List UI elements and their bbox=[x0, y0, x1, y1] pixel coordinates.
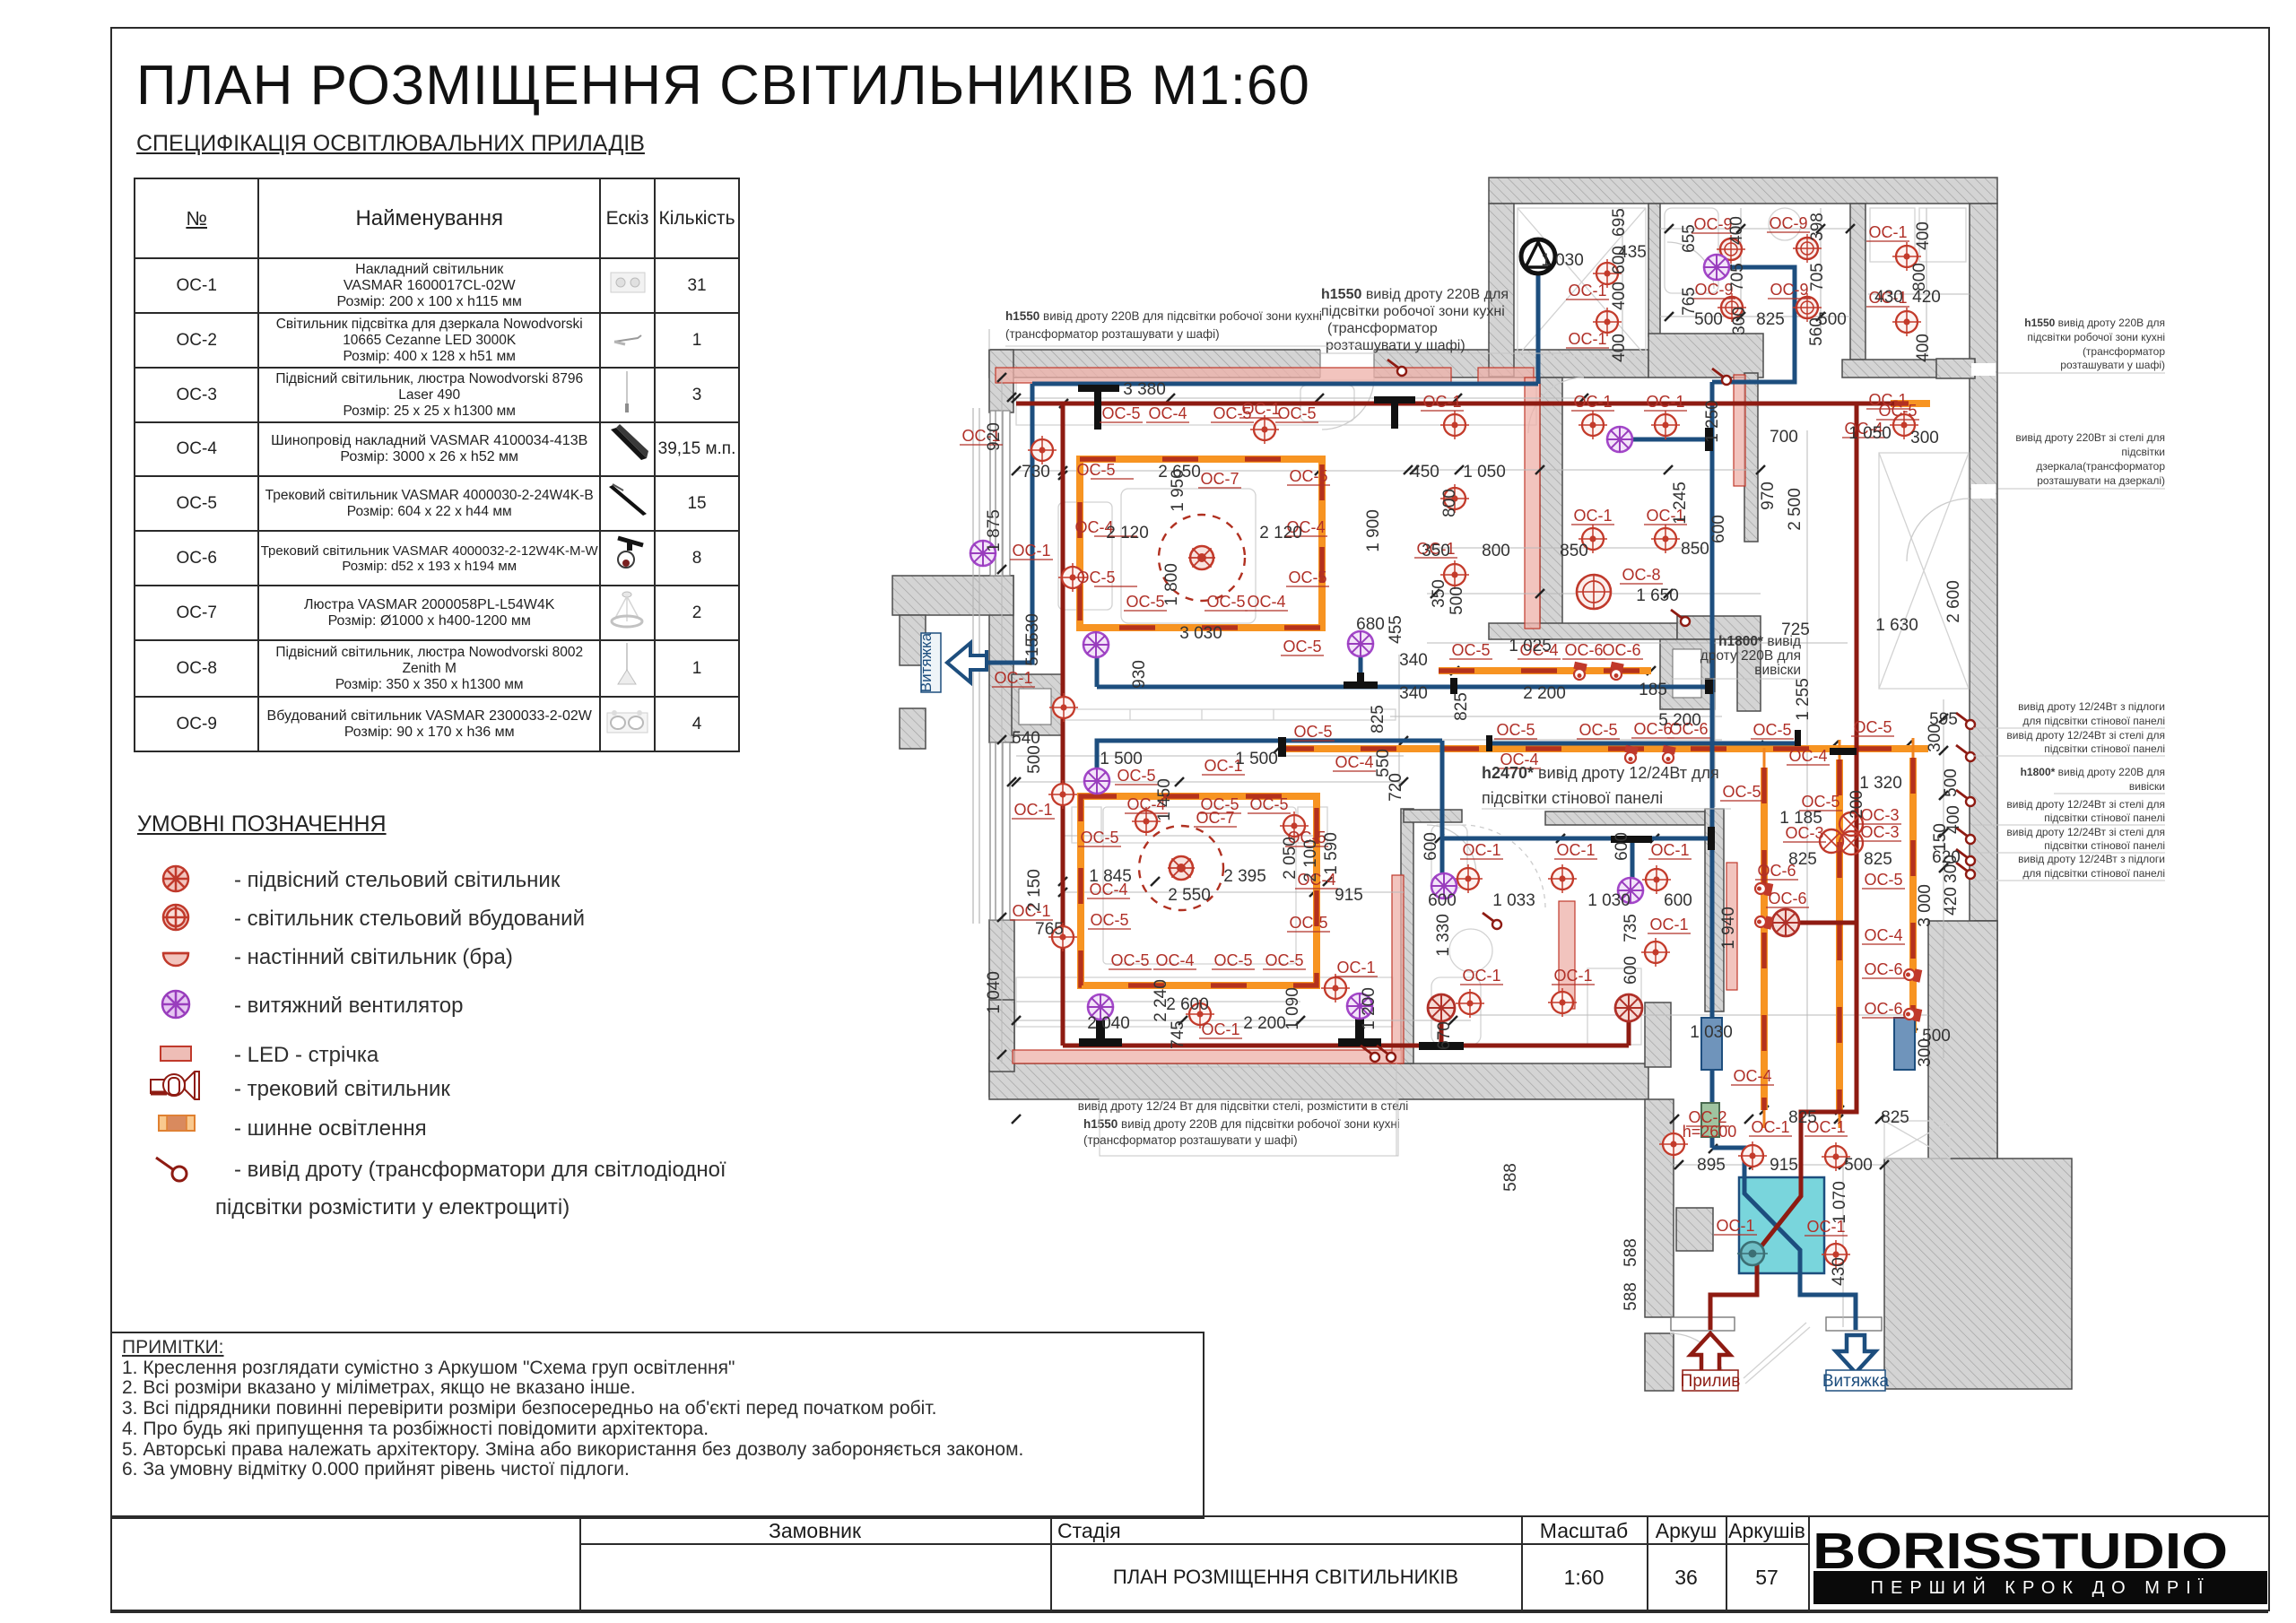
svg-text:930: 930 bbox=[1130, 660, 1149, 689]
svg-text:970: 970 bbox=[1759, 482, 1778, 510]
svg-text:ОС-4: ОС-4 bbox=[1788, 747, 1827, 765]
svg-text:920: 920 bbox=[985, 422, 1004, 451]
svg-text:2 600: 2 600 bbox=[1166, 995, 1209, 1014]
svg-text:825: 825 bbox=[1369, 705, 1387, 733]
svg-text:2 600: 2 600 bbox=[1944, 580, 1963, 623]
svg-text:ОС-1: ОС-1 bbox=[1462, 967, 1500, 985]
svg-text:1 500: 1 500 bbox=[1235, 750, 1278, 768]
svg-text:3 380: 3 380 bbox=[1123, 380, 1166, 399]
svg-text:ОС-1: ОС-1 bbox=[1573, 393, 1612, 411]
svg-text:800: 800 bbox=[1440, 489, 1459, 517]
svg-text:500: 500 bbox=[1025, 745, 1044, 774]
svg-text:підсвітки стінової панелі: підсвітки стінової панелі bbox=[2044, 811, 2165, 824]
svg-text:h1550 вивід дроту 220В для під: h1550 вивід дроту 220В для підсвітки роб… bbox=[1083, 1117, 1400, 1131]
svg-text:825: 825 bbox=[1864, 850, 1892, 869]
svg-text:3 030: 3 030 bbox=[1179, 624, 1222, 643]
svg-text:для підсвітки стінової панелі: для підсвітки стінової панелі bbox=[2022, 867, 2165, 880]
svg-text:600: 600 bbox=[1422, 832, 1440, 861]
svg-text:850: 850 bbox=[1560, 542, 1588, 560]
svg-text:ОС-7: ОС-7 bbox=[1200, 470, 1239, 488]
svg-text:1 030: 1 030 bbox=[1541, 251, 1584, 270]
svg-text:350: 350 bbox=[1422, 542, 1450, 560]
svg-text:300: 300 bbox=[1926, 724, 1944, 752]
svg-text:підсвітки стінової панелі: підсвітки стінової панелі bbox=[2044, 742, 2165, 755]
svg-text:670: 670 bbox=[1435, 1021, 1454, 1050]
svg-text:ОС-1: ОС-1 bbox=[1868, 391, 1907, 409]
svg-text:450: 450 bbox=[1411, 463, 1439, 482]
svg-text:ОС-4: ОС-4 bbox=[1247, 593, 1285, 611]
svg-text:600: 600 bbox=[1622, 956, 1640, 985]
svg-text:1 255: 1 255 bbox=[1794, 678, 1813, 721]
svg-text:695: 695 bbox=[1610, 208, 1629, 237]
svg-text:530: 530 bbox=[1023, 613, 1042, 642]
svg-text:ОС-1: ОС-1 bbox=[1716, 1217, 1754, 1235]
svg-text:ОС-1: ОС-1 bbox=[1568, 330, 1606, 348]
svg-text:1 630: 1 630 bbox=[1875, 616, 1918, 635]
svg-text:765: 765 bbox=[1035, 920, 1064, 939]
svg-text:ОС-4: ОС-4 bbox=[1148, 404, 1187, 422]
svg-text:ОС-3: ОС-3 bbox=[1860, 823, 1899, 841]
svg-text:Витяжка: Витяжка bbox=[1822, 1372, 1890, 1391]
svg-text:ОС-6: ОС-6 bbox=[1864, 960, 1902, 978]
svg-text:1 845: 1 845 bbox=[1089, 867, 1132, 886]
svg-text:825: 825 bbox=[1881, 1108, 1909, 1127]
svg-text:600: 600 bbox=[1664, 891, 1692, 910]
svg-text:ОС-5: ОС-5 bbox=[1101, 404, 1140, 422]
svg-text:ОС-6: ОС-6 bbox=[1864, 1000, 1902, 1018]
svg-text:1 590: 1 590 bbox=[1322, 832, 1341, 875]
svg-text:ОС-5: ОС-5 bbox=[1722, 783, 1761, 801]
svg-text:ОС-6: ОС-6 bbox=[1768, 890, 1806, 907]
svg-text:1 500: 1 500 bbox=[1100, 750, 1143, 768]
svg-text:825: 825 bbox=[1452, 692, 1471, 721]
svg-text:h=2600: h=2600 bbox=[1683, 1123, 1737, 1141]
svg-text:550: 550 bbox=[1374, 749, 1393, 777]
svg-text:ОС-1: ОС-1 bbox=[994, 669, 1032, 687]
svg-text:2 050: 2 050 bbox=[1281, 837, 1300, 880]
svg-text:720: 720 bbox=[1387, 773, 1405, 802]
svg-text:655: 655 bbox=[1680, 224, 1699, 253]
svg-text:1 450: 1 450 bbox=[1155, 778, 1174, 821]
svg-text:ОС-1: ОС-1 bbox=[1649, 916, 1688, 933]
svg-text:ОС-9: ОС-9 bbox=[1769, 214, 1807, 232]
svg-text:5 200: 5 200 bbox=[1658, 711, 1701, 730]
svg-text:1 250: 1 250 bbox=[1703, 400, 1722, 443]
svg-text:588: 588 bbox=[1622, 1238, 1640, 1267]
svg-text:ОС-1: ОС-1 bbox=[1462, 841, 1500, 859]
svg-text:400: 400 bbox=[1914, 334, 1933, 362]
svg-text:ОС-4: ОС-4 bbox=[1335, 753, 1373, 771]
svg-text:ОС-4: ОС-4 bbox=[1733, 1067, 1771, 1085]
svg-text:ОС-5: ОС-5 bbox=[1076, 461, 1115, 479]
svg-text:150: 150 bbox=[1931, 823, 1950, 852]
svg-text:ОС-5: ОС-5 bbox=[1451, 641, 1490, 659]
svg-text:850: 850 bbox=[1681, 540, 1709, 559]
svg-text:2 040: 2 040 bbox=[1087, 1014, 1130, 1033]
svg-text:185: 185 bbox=[1639, 681, 1667, 699]
svg-text:вивіски: вивіски bbox=[1754, 663, 1801, 678]
svg-text:ОС-5: ОС-5 bbox=[1249, 795, 1288, 813]
svg-text:ОС-4: ОС-4 bbox=[1155, 951, 1194, 969]
svg-text:ОС-5: ОС-5 bbox=[1076, 568, 1115, 586]
svg-text:розташувати у шафі): розташувати у шафі) bbox=[2060, 359, 2165, 371]
svg-text:Витяжка: Витяжка bbox=[918, 632, 935, 692]
svg-text:вивід дроту 220Вт зі стелі для: вивід дроту 220Вт зі стелі для bbox=[2015, 431, 2165, 444]
svg-text:для підсвітки стінової панелі: для підсвітки стінової панелі bbox=[2022, 715, 2165, 727]
svg-text:вивід дроту 12/24Вт з підлоги: вивід дроту 12/24Вт з підлоги bbox=[2018, 700, 2165, 713]
svg-text:825: 825 bbox=[1756, 310, 1785, 329]
svg-text:600: 600 bbox=[1610, 246, 1629, 274]
svg-text:2 150: 2 150 bbox=[1025, 869, 1044, 912]
svg-text:ОС-5: ОС-5 bbox=[1283, 638, 1321, 655]
svg-text:вивід дроту 12/24Вт зі стелі д: вивід дроту 12/24Вт зі стелі для bbox=[2006, 826, 2165, 838]
svg-text:300: 300 bbox=[1916, 1038, 1935, 1067]
svg-text:735: 735 bbox=[1622, 914, 1640, 942]
svg-text:2 240: 2 240 bbox=[1152, 979, 1170, 1022]
svg-text:1 185: 1 185 bbox=[1779, 809, 1822, 828]
svg-text:h1550 вивід дроту 220В для: h1550 вивід дроту 220В для bbox=[2024, 317, 2165, 329]
svg-text:вивід дроту 12/24Вт зі стелі д: вивід дроту 12/24Вт зі стелі для bbox=[2006, 729, 2165, 742]
svg-text:340: 340 bbox=[1399, 684, 1428, 703]
svg-text:ОС-9: ОС-9 bbox=[1770, 281, 1808, 299]
svg-text:400: 400 bbox=[1914, 221, 1933, 250]
svg-text:ОС-1: ОС-1 bbox=[1568, 282, 1606, 299]
svg-text:1 050: 1 050 bbox=[1463, 463, 1506, 482]
svg-text:розташувати на дзеркалі): розташувати на дзеркалі) bbox=[2037, 474, 2165, 487]
svg-text:2 120: 2 120 bbox=[1106, 524, 1149, 542]
svg-text:вивід дроту 12/24Вт зі стелі д: вивід дроту 12/24Вт зі стелі для bbox=[2006, 798, 2165, 811]
svg-text:ОС-1: ОС-1 bbox=[1553, 967, 1592, 985]
svg-text:915: 915 bbox=[1770, 1156, 1798, 1175]
svg-text:ОС-6: ОС-6 bbox=[1602, 641, 1640, 659]
svg-text:340: 340 bbox=[1399, 651, 1428, 670]
svg-text:745: 745 bbox=[1169, 1020, 1187, 1049]
svg-text:ОС-5: ОС-5 bbox=[1206, 593, 1245, 611]
svg-text:ОС-1: ОС-1 bbox=[1201, 1020, 1239, 1038]
svg-text:765: 765 bbox=[1680, 287, 1699, 316]
svg-text:ОС-5: ОС-5 bbox=[1110, 951, 1149, 969]
svg-text:600: 600 bbox=[1709, 515, 1728, 543]
svg-text:1 800: 1 800 bbox=[1162, 563, 1181, 606]
svg-text:h1550 вивід дроту 220В для: h1550 вивід дроту 220В для bbox=[1321, 287, 1509, 302]
svg-text:1 033: 1 033 bbox=[1492, 891, 1535, 910]
svg-text:дроту 220В для: дроту 220В для bbox=[1700, 648, 1801, 664]
svg-text:1 320: 1 320 bbox=[1859, 774, 1902, 793]
svg-text:600: 600 bbox=[1428, 891, 1457, 910]
svg-text:825: 825 bbox=[1788, 1108, 1817, 1127]
svg-text:398: 398 bbox=[1808, 213, 1827, 241]
svg-text:3 000: 3 000 bbox=[1916, 884, 1935, 927]
svg-text:1 090: 1 090 bbox=[1283, 987, 1302, 1030]
svg-text:ОС-1: ОС-1 bbox=[1422, 393, 1461, 411]
svg-text:430: 430 bbox=[1874, 288, 1903, 307]
svg-text:ОС-1: ОС-1 bbox=[1012, 542, 1050, 560]
svg-text:Прилив: Прилив bbox=[1681, 1372, 1741, 1391]
svg-text:ОС-5: ОС-5 bbox=[1126, 593, 1164, 611]
svg-text:400: 400 bbox=[1610, 334, 1629, 362]
svg-text:1 875: 1 875 bbox=[985, 509, 1004, 552]
svg-text:500: 500 bbox=[1448, 586, 1466, 615]
svg-text:430: 430 bbox=[1830, 1257, 1848, 1286]
svg-text:2 100: 2 100 bbox=[1301, 839, 1320, 882]
svg-text:1 070: 1 070 bbox=[1831, 1181, 1849, 1224]
svg-text:h2470* вивід дроту 12/24Вт для: h2470* вивід дроту 12/24Вт для bbox=[1482, 764, 1719, 782]
svg-text:1 040: 1 040 bbox=[985, 971, 1004, 1014]
svg-text:588: 588 bbox=[1501, 1163, 1520, 1192]
svg-text:2 395: 2 395 bbox=[1223, 867, 1266, 886]
svg-text:підсвітки: підсвітки bbox=[2121, 446, 2165, 458]
svg-text:200: 200 bbox=[1848, 790, 1866, 819]
svg-text:ОС-1: ОС-1 bbox=[1868, 223, 1907, 241]
svg-text:895: 895 bbox=[1697, 1156, 1726, 1175]
svg-text:ОС-5: ОС-5 bbox=[1578, 721, 1617, 739]
svg-text:ОС-5: ОС-5 bbox=[1090, 911, 1128, 929]
svg-text:ОС-1: ОС-1 bbox=[1556, 841, 1595, 859]
svg-text:420: 420 bbox=[1942, 887, 1961, 916]
svg-text:500: 500 bbox=[1942, 768, 1961, 797]
svg-text:540: 540 bbox=[1012, 729, 1040, 748]
svg-text:1 940: 1 940 bbox=[1719, 907, 1738, 950]
svg-text:ОС-5: ОС-5 bbox=[1752, 721, 1791, 739]
svg-text:ОС-5: ОС-5 bbox=[1864, 871, 1902, 889]
svg-text:ОС-8: ОС-8 bbox=[1622, 566, 1660, 584]
svg-text:ОС-1: ОС-1 bbox=[1241, 400, 1280, 418]
svg-text:515: 515 bbox=[1023, 638, 1042, 666]
svg-text:600: 600 bbox=[1613, 832, 1631, 861]
svg-text:2 500: 2 500 bbox=[1786, 488, 1805, 531]
svg-text:підсвітки робочої зони кухні: підсвітки робочої зони кухні bbox=[2027, 331, 2165, 343]
svg-text:підсвітки стінової панелі: підсвітки стінової панелі bbox=[1482, 789, 1663, 807]
svg-text:700: 700 bbox=[1770, 428, 1798, 447]
svg-text:ОС-5: ОС-5 bbox=[1265, 951, 1303, 969]
svg-text:ОС-5: ОС-5 bbox=[1496, 721, 1535, 739]
svg-text:455: 455 bbox=[1387, 615, 1405, 644]
svg-text:1 245: 1 245 bbox=[1671, 482, 1690, 525]
svg-text:705: 705 bbox=[1808, 263, 1827, 291]
svg-text:підсвітки стінової панелі: підсвітки стінової панелі bbox=[2044, 839, 2165, 852]
svg-text:1 030: 1 030 bbox=[1587, 891, 1631, 910]
svg-text:вивіски: вивіски bbox=[2129, 780, 2165, 793]
svg-text:730: 730 bbox=[1022, 463, 1050, 482]
svg-text:705: 705 bbox=[1728, 263, 1747, 291]
svg-text:800: 800 bbox=[1910, 263, 1929, 291]
svg-text:ОС-5: ОС-5 bbox=[1288, 568, 1326, 586]
svg-text:350: 350 bbox=[1430, 579, 1448, 608]
svg-text:588: 588 bbox=[1622, 1282, 1640, 1311]
svg-text:ОС-5: ОС-5 bbox=[1853, 718, 1892, 736]
svg-text:1 030: 1 030 bbox=[1690, 1023, 1733, 1042]
svg-text:1 330: 1 330 bbox=[1434, 914, 1453, 957]
svg-text:800: 800 bbox=[1482, 542, 1510, 560]
svg-text:ОС-5: ОС-5 bbox=[1293, 723, 1332, 741]
svg-text:(трансформатор розташувати у ш: (трансформатор розташувати у шафі) bbox=[1083, 1133, 1298, 1147]
svg-text:(трансформатор розташувати у ш: (трансформатор розташувати у шафі) bbox=[1005, 327, 1220, 341]
svg-text:h1550 вивід дроту 220В для під: h1550 вивід дроту 220В для підсвітки роб… bbox=[1005, 309, 1322, 323]
svg-text:ОС-5: ОС-5 bbox=[1277, 404, 1316, 422]
svg-text:ОС-1: ОС-1 bbox=[1336, 959, 1375, 976]
svg-text:1 650: 1 650 bbox=[1636, 586, 1679, 605]
svg-text:300: 300 bbox=[1942, 855, 1961, 883]
svg-text:підсвітки робочої зони кухні: підсвітки робочої зони кухні bbox=[1321, 304, 1505, 319]
svg-text:ОС-5: ОС-5 bbox=[1117, 767, 1155, 785]
svg-text:500: 500 bbox=[1844, 1156, 1873, 1175]
svg-text:560: 560 bbox=[1807, 317, 1826, 346]
svg-text:дзеркала(трансформатор: дзеркала(трансформатор bbox=[2036, 460, 2165, 473]
svg-text:400: 400 bbox=[1727, 216, 1746, 245]
svg-text:ОС-1: ОС-1 bbox=[1573, 507, 1612, 525]
svg-text:вивід дроту 12/24Вт з підлоги: вивід дроту 12/24Вт з підлоги bbox=[2018, 853, 2165, 865]
svg-text:2 200: 2 200 bbox=[1523, 684, 1566, 703]
svg-text:ОС-1: ОС-1 bbox=[1650, 841, 1689, 859]
svg-text:680: 680 bbox=[1356, 615, 1385, 634]
svg-text:1 025: 1 025 bbox=[1509, 637, 1552, 655]
svg-text:2 200: 2 200 bbox=[1243, 1014, 1286, 1033]
svg-text:2 120: 2 120 bbox=[1259, 524, 1302, 542]
svg-text:300: 300 bbox=[1910, 429, 1939, 447]
svg-text:h1800* вивід дроту 220В для: h1800* вивід дроту 220В для bbox=[2021, 766, 2165, 778]
svg-text:300: 300 bbox=[1730, 307, 1749, 335]
svg-text:1 200: 1 200 bbox=[1360, 987, 1378, 1030]
svg-text:ОС-7: ОС-7 bbox=[1196, 809, 1234, 827]
svg-text:ОС-5: ОС-5 bbox=[1080, 829, 1118, 846]
svg-text:ОС-5: ОС-5 bbox=[1289, 467, 1327, 485]
svg-text:2 550: 2 550 bbox=[1168, 886, 1211, 905]
svg-text:ОС-5: ОС-5 bbox=[1213, 951, 1252, 969]
svg-text:h1800* вивід: h1800* вивід bbox=[1718, 634, 1801, 649]
svg-text:1 950: 1 950 bbox=[1169, 469, 1187, 512]
svg-text:1 050: 1 050 bbox=[1848, 424, 1892, 443]
svg-text:ОС-1: ОС-1 bbox=[1646, 393, 1684, 411]
svg-text:ОС-5: ОС-5 bbox=[1289, 914, 1327, 932]
svg-text:(трансформатор: (трансформатор bbox=[2083, 345, 2165, 358]
svg-text:825: 825 bbox=[1788, 850, 1817, 869]
svg-text:(трансформатор: (трансформатор bbox=[1327, 321, 1438, 336]
svg-text:ОС-1: ОС-1 bbox=[1013, 801, 1052, 819]
svg-text:ОС-1: ОС-1 bbox=[1751, 1118, 1789, 1136]
svg-text:1 900: 1 900 bbox=[1364, 509, 1383, 552]
svg-text:400: 400 bbox=[1610, 282, 1629, 310]
svg-text:ОС-6: ОС-6 bbox=[1564, 641, 1603, 659]
svg-text:ОС-5: ОС-5 bbox=[1801, 793, 1839, 811]
svg-text:915: 915 bbox=[1335, 886, 1363, 905]
svg-text:ОС-4: ОС-4 bbox=[1864, 926, 1902, 944]
svg-text:вивід дроту 12/24 Вт для підсв: вивід дроту 12/24 Вт для підсвітки стелі… bbox=[1078, 1099, 1408, 1113]
